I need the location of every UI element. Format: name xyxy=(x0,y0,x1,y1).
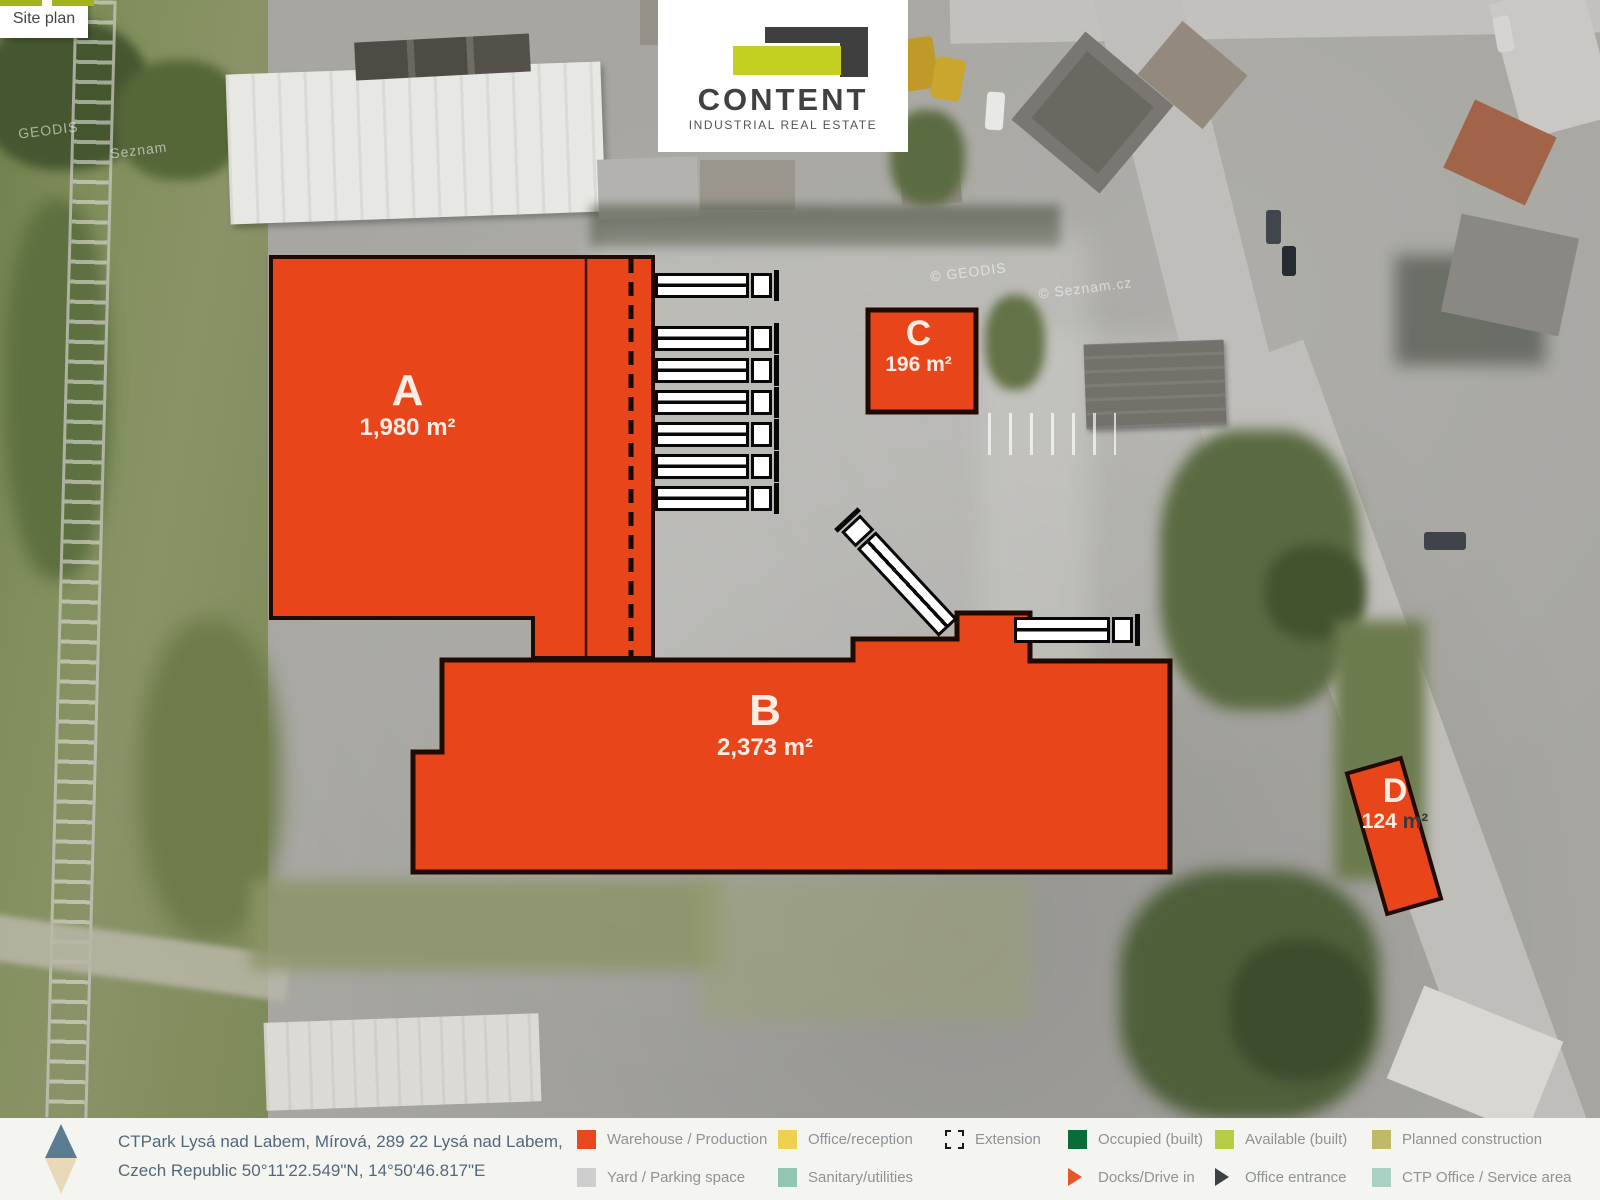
legend-column: Warehouse / Production Yard / Parking sp… xyxy=(577,1127,767,1200)
dock-bar xyxy=(1135,614,1140,646)
legend-column: Office/reception Sanitary/utilities xyxy=(778,1127,913,1200)
extension-dashed-icon xyxy=(945,1130,964,1149)
truck-trailer xyxy=(655,454,749,479)
north-compass-icon xyxy=(45,1124,77,1194)
available-swatch-icon xyxy=(1215,1130,1234,1149)
dock-truck-icon xyxy=(655,390,779,415)
truck-cab xyxy=(751,422,772,447)
address-line-2: Czech Republic 50°11'22.549"N, 14°50'46.… xyxy=(118,1156,563,1185)
legend-label: Extension xyxy=(975,1131,1041,1148)
dock-bar xyxy=(774,270,779,301)
content-logo: CONTENT INDUSTRIAL REAL ESTATE xyxy=(658,0,908,152)
site-plan-page: GEODIS Seznam © GEODIS © Seznam.cz A 1,9… xyxy=(0,0,1600,1200)
legend-label: Office entrance xyxy=(1245,1169,1346,1186)
truck-trailer xyxy=(655,422,749,447)
truck-trailer xyxy=(655,390,749,415)
truck-cab xyxy=(751,390,772,415)
dock-truck-icon xyxy=(655,422,779,447)
legend-item-extension: Extension xyxy=(945,1127,1041,1151)
legend-column: Available (built) Office entrance xyxy=(1215,1127,1347,1200)
compass-north-needle xyxy=(45,1124,77,1158)
legend-item-planned: Planned construction xyxy=(1372,1127,1572,1151)
planned-swatch-icon xyxy=(1372,1130,1391,1149)
compass-south-needle xyxy=(45,1158,77,1194)
legend-item-warehouse: Warehouse / Production xyxy=(577,1127,767,1151)
truck-cab xyxy=(1112,617,1133,643)
dock-truck-icon xyxy=(1014,617,1140,643)
truck-trailer xyxy=(1014,617,1110,643)
legend-column: Occupied (built) Docks/Drive in xyxy=(1068,1127,1203,1200)
dock-bar xyxy=(774,419,779,450)
ctp-office-swatch-icon xyxy=(1372,1168,1391,1187)
office-entrance-triangle-icon xyxy=(1215,1168,1234,1186)
legend-item-available: Available (built) xyxy=(1215,1127,1347,1151)
sanitary-swatch-icon xyxy=(778,1168,797,1187)
building-D-shape[interactable] xyxy=(1347,758,1441,914)
yard-swatch-icon xyxy=(577,1168,596,1187)
warehouse-swatch-icon xyxy=(577,1130,596,1149)
legend-item-docks: Docks/Drive in xyxy=(1068,1165,1203,1189)
legend-item-ctp-office: CTP Office / Service area xyxy=(1372,1165,1572,1189)
legend-label: Planned construction xyxy=(1402,1131,1542,1148)
truck-cab xyxy=(751,358,772,383)
building-overlay-layer xyxy=(0,0,1600,1200)
dock-truck-icon xyxy=(655,273,779,298)
legend-label: Sanitary/utilities xyxy=(808,1169,913,1186)
legend-item-sanitary: Sanitary/utilities xyxy=(778,1165,913,1189)
logo-mark-yellow-block xyxy=(733,46,841,75)
park-address: CTPark Lysá nad Labem, Mírová, 289 22 Ly… xyxy=(118,1127,563,1185)
tab-accent-strip xyxy=(52,0,94,6)
truck-cab xyxy=(751,454,772,479)
legend-label: CTP Office / Service area xyxy=(1402,1169,1572,1186)
legend-label: Yard / Parking space xyxy=(607,1169,745,1186)
occupied-swatch-icon xyxy=(1068,1130,1087,1149)
legend-item-office-entrance: Office entrance xyxy=(1215,1165,1347,1189)
truck-trailer xyxy=(655,358,749,383)
truck-cab xyxy=(751,326,772,351)
dock-truck-icon xyxy=(655,358,779,383)
truck-trailer xyxy=(655,273,749,298)
dock-truck-icon xyxy=(655,454,779,479)
truck-cab xyxy=(751,486,772,511)
legend-label: Docks/Drive in xyxy=(1098,1169,1195,1186)
dock-bar xyxy=(774,323,779,354)
tab-accent-strip xyxy=(0,0,42,6)
building-A-shape[interactable] xyxy=(271,257,653,658)
legend-label: Occupied (built) xyxy=(1098,1131,1203,1148)
building-C-shape[interactable] xyxy=(868,310,976,412)
logo-tagline: INDUSTRIAL REAL ESTATE xyxy=(658,118,908,132)
legend-label: Warehouse / Production xyxy=(607,1131,767,1148)
address-line-1: CTPark Lysá nad Labem, Mírová, 289 22 Ly… xyxy=(118,1127,563,1156)
truck-cab xyxy=(751,273,772,298)
dock-bar xyxy=(774,387,779,418)
dock-bar xyxy=(774,483,779,514)
legend-column: Planned construction CTP Office / Servic… xyxy=(1372,1127,1572,1200)
legend-item-office: Office/reception xyxy=(778,1127,913,1151)
legend-label: Available (built) xyxy=(1245,1131,1347,1148)
dock-bar xyxy=(774,451,779,482)
dock-truck-icon xyxy=(655,326,779,351)
dock-bar xyxy=(774,355,779,386)
legend-label: Office/reception xyxy=(808,1131,913,1148)
truck-trailer xyxy=(655,486,749,511)
docks-triangle-icon xyxy=(1068,1168,1087,1186)
truck-trailer xyxy=(655,326,749,351)
legend-item-occupied: Occupied (built) xyxy=(1068,1127,1203,1151)
legend-item-yard: Yard / Parking space xyxy=(577,1165,767,1189)
building-B-shape[interactable] xyxy=(413,613,1170,872)
logo-mark-dark-column xyxy=(840,27,868,77)
legend-column: Extension xyxy=(945,1127,1041,1165)
office-swatch-icon xyxy=(778,1130,797,1149)
logo-wordmark: CONTENT xyxy=(658,82,908,118)
dock-truck-icon xyxy=(655,486,779,511)
